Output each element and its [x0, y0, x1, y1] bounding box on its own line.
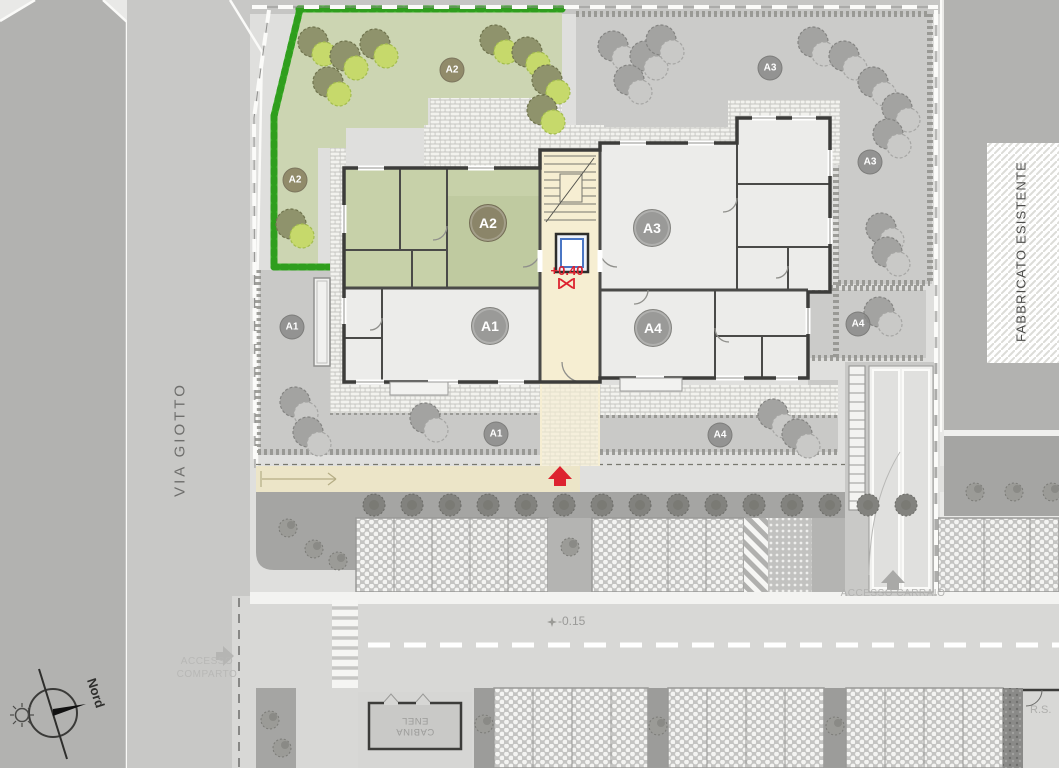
existing-building-footprint — [987, 143, 1059, 363]
garden-pergola — [314, 278, 330, 366]
unit-a1-rooms — [344, 288, 540, 382]
via-giotto-street — [127, 0, 250, 768]
site-plan: A2A2A2A3A3A3A1A1A4A4A1A4 VIA GIOTTO FABB… — [0, 0, 1059, 768]
garage-ramp — [845, 362, 937, 596]
cabina-enel — [369, 694, 461, 749]
crosswalk-stripes — [744, 518, 768, 592]
existing-building-area — [941, 0, 1059, 516]
west-block — [0, 0, 127, 768]
garden-a4-east — [810, 290, 926, 358]
unit-a4-rooms — [600, 290, 808, 378]
elevator-icon — [556, 234, 588, 272]
pedestrian-crossing — [332, 600, 358, 688]
moto-parking — [768, 518, 812, 592]
site-plan-drawing — [0, 0, 1059, 768]
unit-a3-rooms — [600, 143, 830, 290]
entrance-path — [540, 382, 600, 466]
porch-south-a4 — [620, 378, 682, 391]
porch-south-a1 — [390, 382, 448, 395]
parking-row-upper — [356, 518, 1059, 592]
waste-enclosure — [1023, 688, 1059, 768]
walkway — [256, 465, 944, 493]
